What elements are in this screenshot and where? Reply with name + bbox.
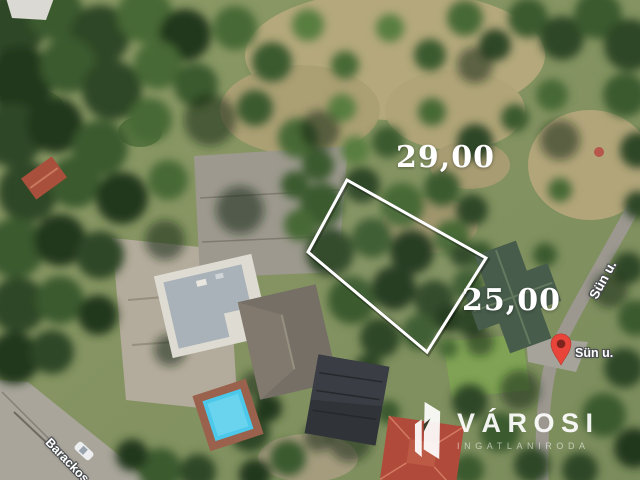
- watermark-subtitle: INGATLANIRODA: [457, 442, 600, 451]
- street-label-sun-pin: Sün u.: [575, 347, 613, 360]
- map-pin-icon[interactable]: [547, 331, 575, 367]
- watermark-logo: VÁROSI INGATLANIRODA: [413, 398, 600, 462]
- building-topleft-white: [6, 0, 54, 20]
- watermark-brand: VÁROSI: [457, 410, 600, 437]
- car-red: [594, 147, 604, 157]
- building-dark-modern: [305, 354, 390, 445]
- dimension-label-top: 29,00: [396, 143, 495, 173]
- watermark-text: VÁROSI INGATLANIRODA: [457, 410, 600, 451]
- varosi-logo-icon: [413, 398, 446, 462]
- satellite-map: 29,00 25,00 Sün u. Sün u. Barackos VÁROS…: [0, 0, 640, 480]
- dimension-label-right: 25,00: [462, 286, 561, 316]
